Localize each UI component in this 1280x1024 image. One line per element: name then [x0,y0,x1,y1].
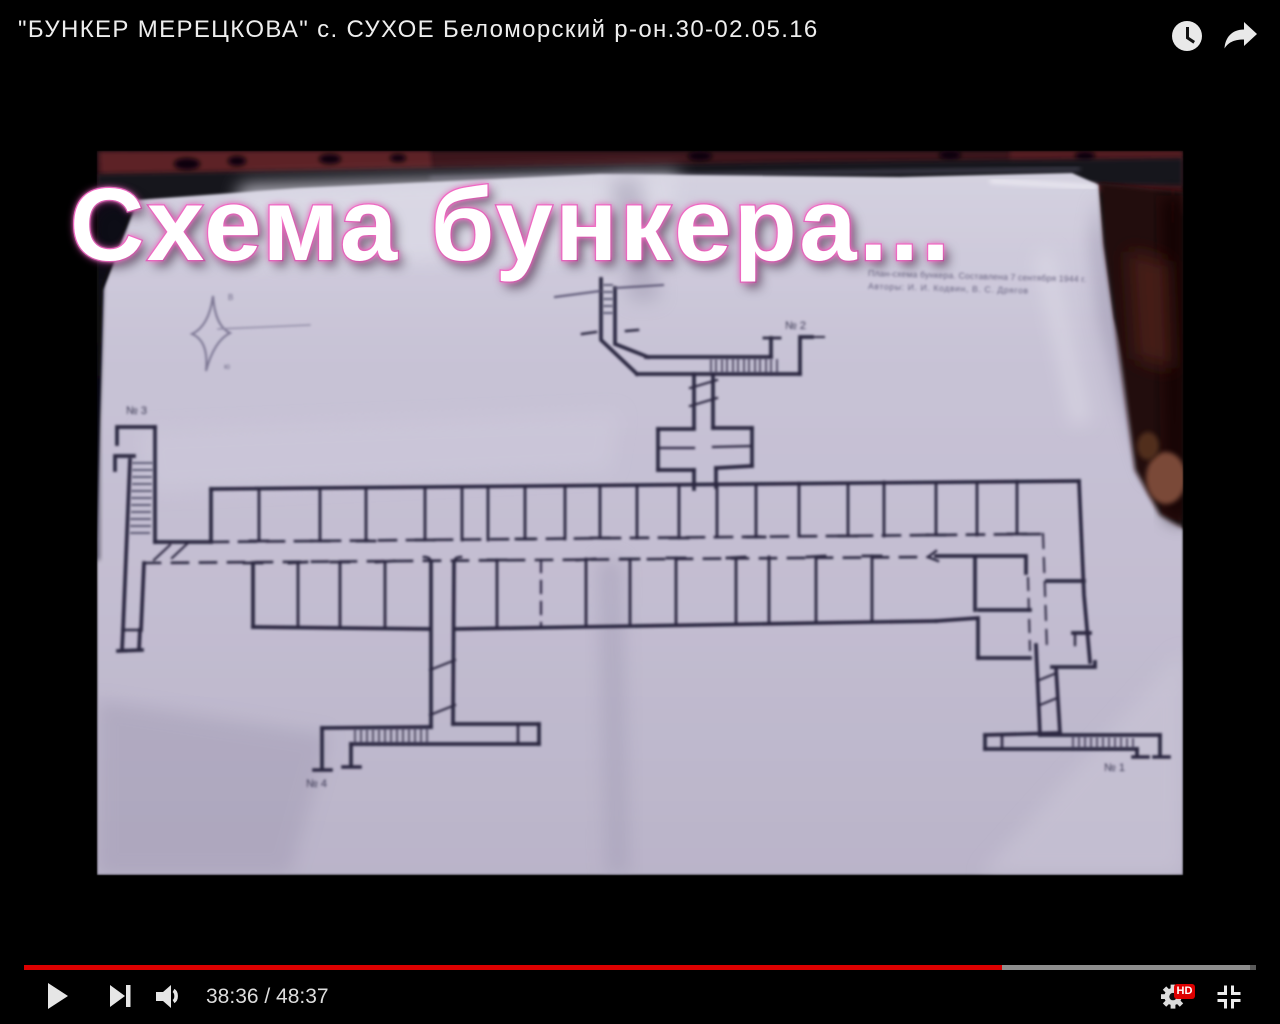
svg-text:№ 2: № 2 [785,320,806,332]
svg-text:ю: ю [224,362,230,371]
svg-text:№ 3: № 3 [126,405,147,417]
svg-text:№ 4: № 4 [306,778,327,790]
svg-text:В: В [228,293,233,302]
svg-text:№ 1: № 1 [1104,762,1125,774]
